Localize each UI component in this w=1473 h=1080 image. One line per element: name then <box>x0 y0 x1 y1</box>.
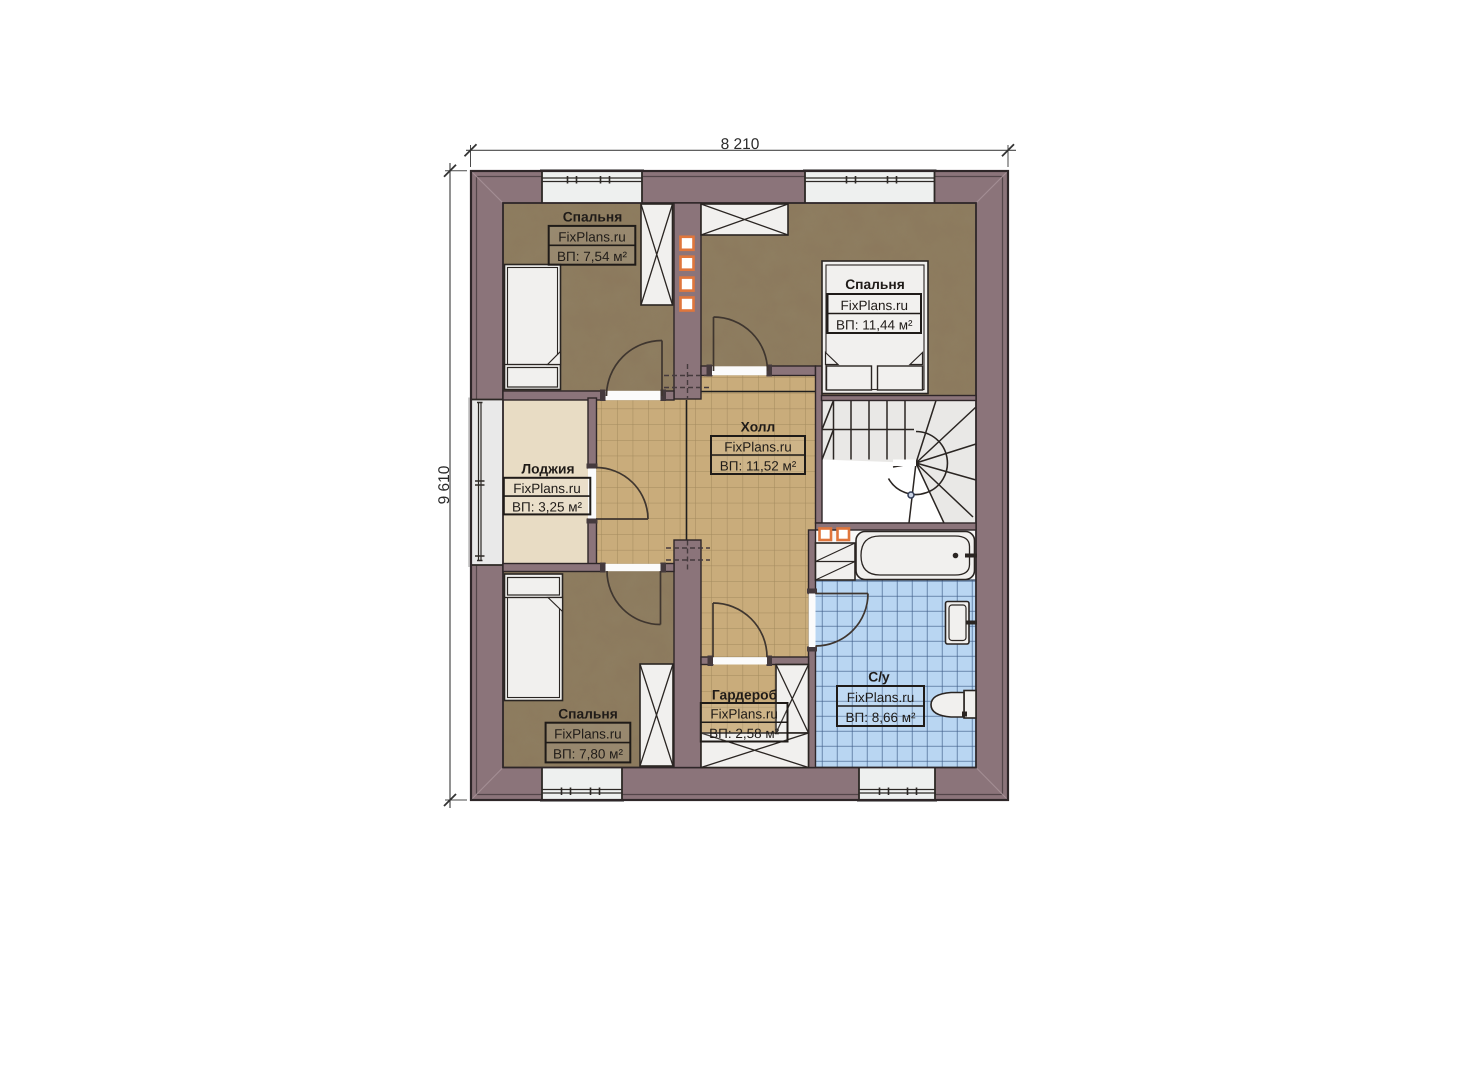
svg-text:9 610: 9 610 <box>436 465 453 504</box>
svg-text:Спальня: Спальня <box>845 277 905 292</box>
svg-text:Гардероб: Гардероб <box>712 688 777 703</box>
svg-text:FixPlans.ru: FixPlans.ru <box>554 727 622 742</box>
svg-text:8 210: 8 210 <box>721 136 760 153</box>
svg-text:ВП: 7,54 м²: ВП: 7,54 м² <box>557 249 628 264</box>
svg-text:FixPlans.ru: FixPlans.ru <box>710 707 778 722</box>
svg-text:Холл: Холл <box>741 420 776 435</box>
svg-text:С/у: С/у <box>868 670 890 685</box>
svg-text:ВП: 8,66 м²: ВП: 8,66 м² <box>845 710 916 725</box>
svg-text:ВП: 2,58 м²: ВП: 2,58 м² <box>709 726 780 741</box>
svg-text:ВП: 3,25 м²: ВП: 3,25 м² <box>512 499 583 514</box>
svg-text:ВП: 11,52 м²: ВП: 11,52 м² <box>720 459 797 474</box>
svg-text:Лоджия: Лоджия <box>522 462 575 477</box>
svg-text:ВП: 11,44 м²: ВП: 11,44 м² <box>836 317 913 332</box>
svg-text:Спальня: Спальня <box>558 707 618 722</box>
svg-text:FixPlans.ru: FixPlans.ru <box>847 690 915 705</box>
svg-text:FixPlans.ru: FixPlans.ru <box>724 440 792 455</box>
svg-text:FixPlans.ru: FixPlans.ru <box>513 481 581 496</box>
svg-text:ВП: 7,80 м²: ВП: 7,80 м² <box>553 746 624 761</box>
svg-text:FixPlans.ru: FixPlans.ru <box>558 230 626 245</box>
svg-text:Спальня: Спальня <box>563 210 623 225</box>
svg-text:FixPlans.ru: FixPlans.ru <box>840 298 908 313</box>
